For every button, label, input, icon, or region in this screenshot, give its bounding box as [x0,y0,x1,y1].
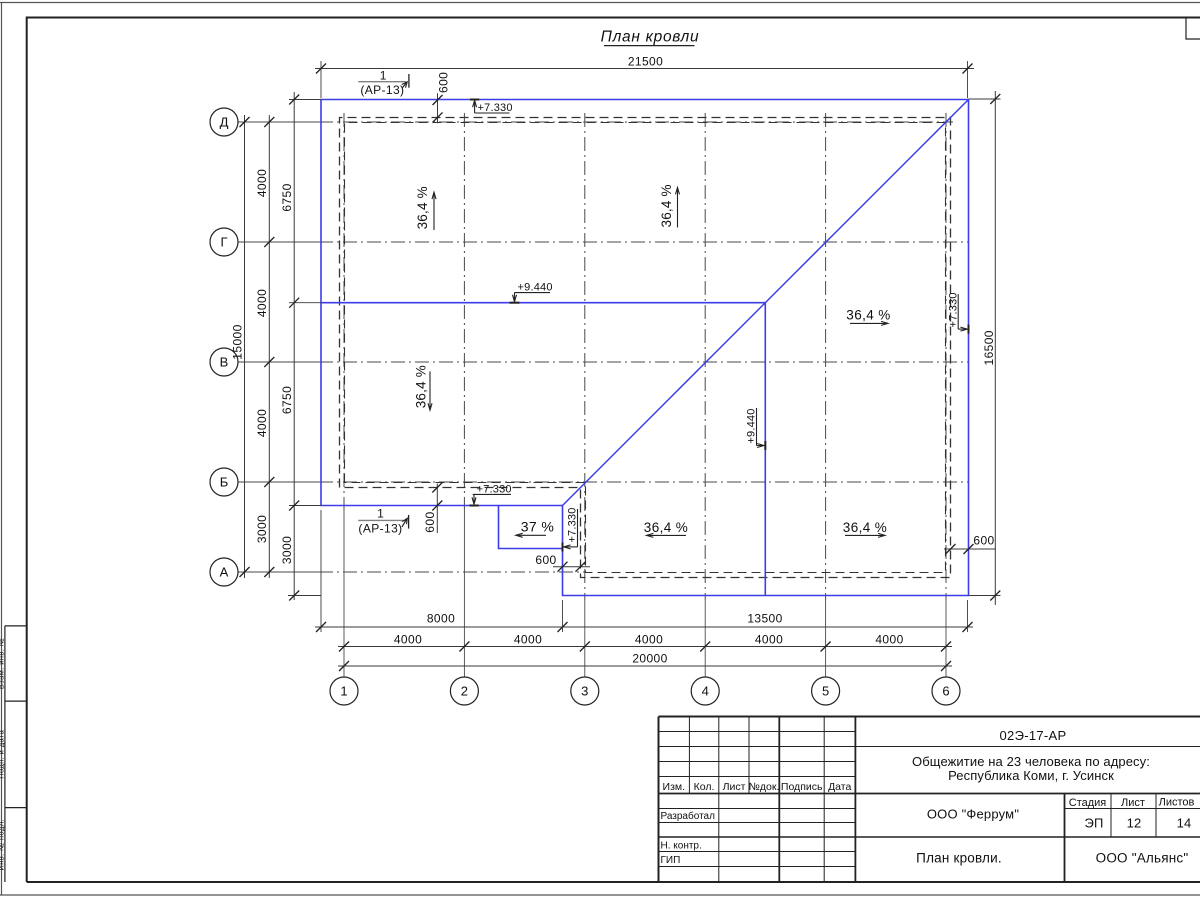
svg-text:Изм.: Изм. [663,781,686,793]
svg-text:13500: 13500 [747,612,782,626]
svg-text:План кровли.: План кровли. [916,851,1002,866]
svg-text:36,4 %: 36,4 % [846,308,890,323]
svg-text:4000: 4000 [255,289,269,317]
svg-text:+9.440: +9.440 [746,408,758,443]
svg-text:6750: 6750 [280,386,294,414]
svg-text:Разработал: Разработал [661,810,716,822]
svg-text:(АР-13): (АР-13) [358,522,402,536]
svg-text:20000: 20000 [632,652,667,666]
svg-text:Лист: Лист [723,781,746,793]
svg-text:8000: 8000 [427,612,455,626]
svg-text:№док.: №док. [749,781,780,793]
svg-text:3000: 3000 [255,515,269,543]
svg-text:Листов: Листов [1159,797,1195,809]
svg-text:5: 5 [822,684,829,699]
svg-text:2: 2 [461,684,468,699]
svg-text:3: 3 [581,684,588,699]
svg-text:37 %: 37 % [521,518,555,534]
svg-text:1: 1 [340,684,347,699]
svg-text:Лист: Лист [1121,797,1145,809]
svg-text:ЭП: ЭП [1084,816,1103,831]
svg-text:600: 600 [423,511,437,532]
svg-text:21500: 21500 [628,55,663,69]
svg-text:36,4 %: 36,4 % [644,520,688,535]
svg-text:36,4 %: 36,4 % [414,365,429,408]
svg-text:Подп. и дата: Подп. и дата [0,729,6,778]
svg-text:600: 600 [973,534,994,548]
svg-text:+7.330: +7.330 [478,102,513,114]
svg-text:(АР-13): (АР-13) [360,83,404,97]
svg-text:В: В [220,355,229,370]
svg-text:+9.440: +9.440 [518,282,553,294]
svg-text:ООО "Феррум": ООО "Феррум" [927,807,1019,822]
svg-text:36,4 %: 36,4 % [415,186,430,229]
svg-text:А: А [220,565,229,580]
svg-text:4000: 4000 [394,633,422,647]
svg-text:Н. контр.: Н. контр. [661,841,702,852]
svg-text:1: 1 [377,507,384,521]
svg-text:ГИП: ГИП [661,855,681,866]
svg-text:36,4 %: 36,4 % [843,520,887,535]
svg-text:Общежитие на 23 человека по ад: Общежитие на 23 человека по адресу: [912,754,1150,769]
svg-text:+7.330: +7.330 [567,507,579,542]
svg-text:Б: Б [220,475,229,490]
svg-text:4000: 4000 [755,633,783,647]
svg-text:6750: 6750 [280,183,294,211]
svg-text:Подпись: Подпись [781,781,823,793]
svg-text:Дата: Дата [828,781,851,793]
svg-text:Республика Коми, г. Усинск: Республика Коми, г. Усинск [948,768,1114,783]
svg-text:План кровли: План кровли [601,29,700,46]
svg-text:6: 6 [942,684,949,699]
svg-text:Д: Д [220,115,229,130]
svg-text:15000: 15000 [231,324,245,359]
svg-text:4000: 4000 [255,169,269,197]
svg-text:Кол.: Кол. [694,781,715,793]
svg-text:1: 1 [380,69,387,83]
svg-text:02Э-17-АР: 02Э-17-АР [1000,728,1067,743]
svg-text:16500: 16500 [982,330,996,365]
svg-text:+7.330: +7.330 [477,483,512,495]
svg-text:4000: 4000 [875,633,903,647]
svg-text:3000: 3000 [280,536,294,564]
svg-text:4000: 4000 [514,633,542,647]
svg-text:14: 14 [1177,816,1192,831]
svg-text:4000: 4000 [255,409,269,437]
svg-text:Инв. № подл.: Инв. № подл. [0,819,6,871]
svg-text:Г: Г [220,235,227,250]
svg-text:12: 12 [1127,816,1142,831]
svg-text:Взам. инв. №: Взам. инв. № [0,638,6,689]
svg-text:600: 600 [535,553,556,567]
svg-text:4000: 4000 [635,633,663,647]
svg-text:+7.330: +7.330 [947,292,959,327]
svg-text:4: 4 [702,684,709,699]
svg-text:Стадия: Стадия [1069,797,1107,809]
svg-text:600: 600 [437,72,451,93]
svg-text:ООО "Альянс": ООО "Альянс" [1096,851,1189,866]
svg-text:36,4 %: 36,4 % [659,184,674,227]
